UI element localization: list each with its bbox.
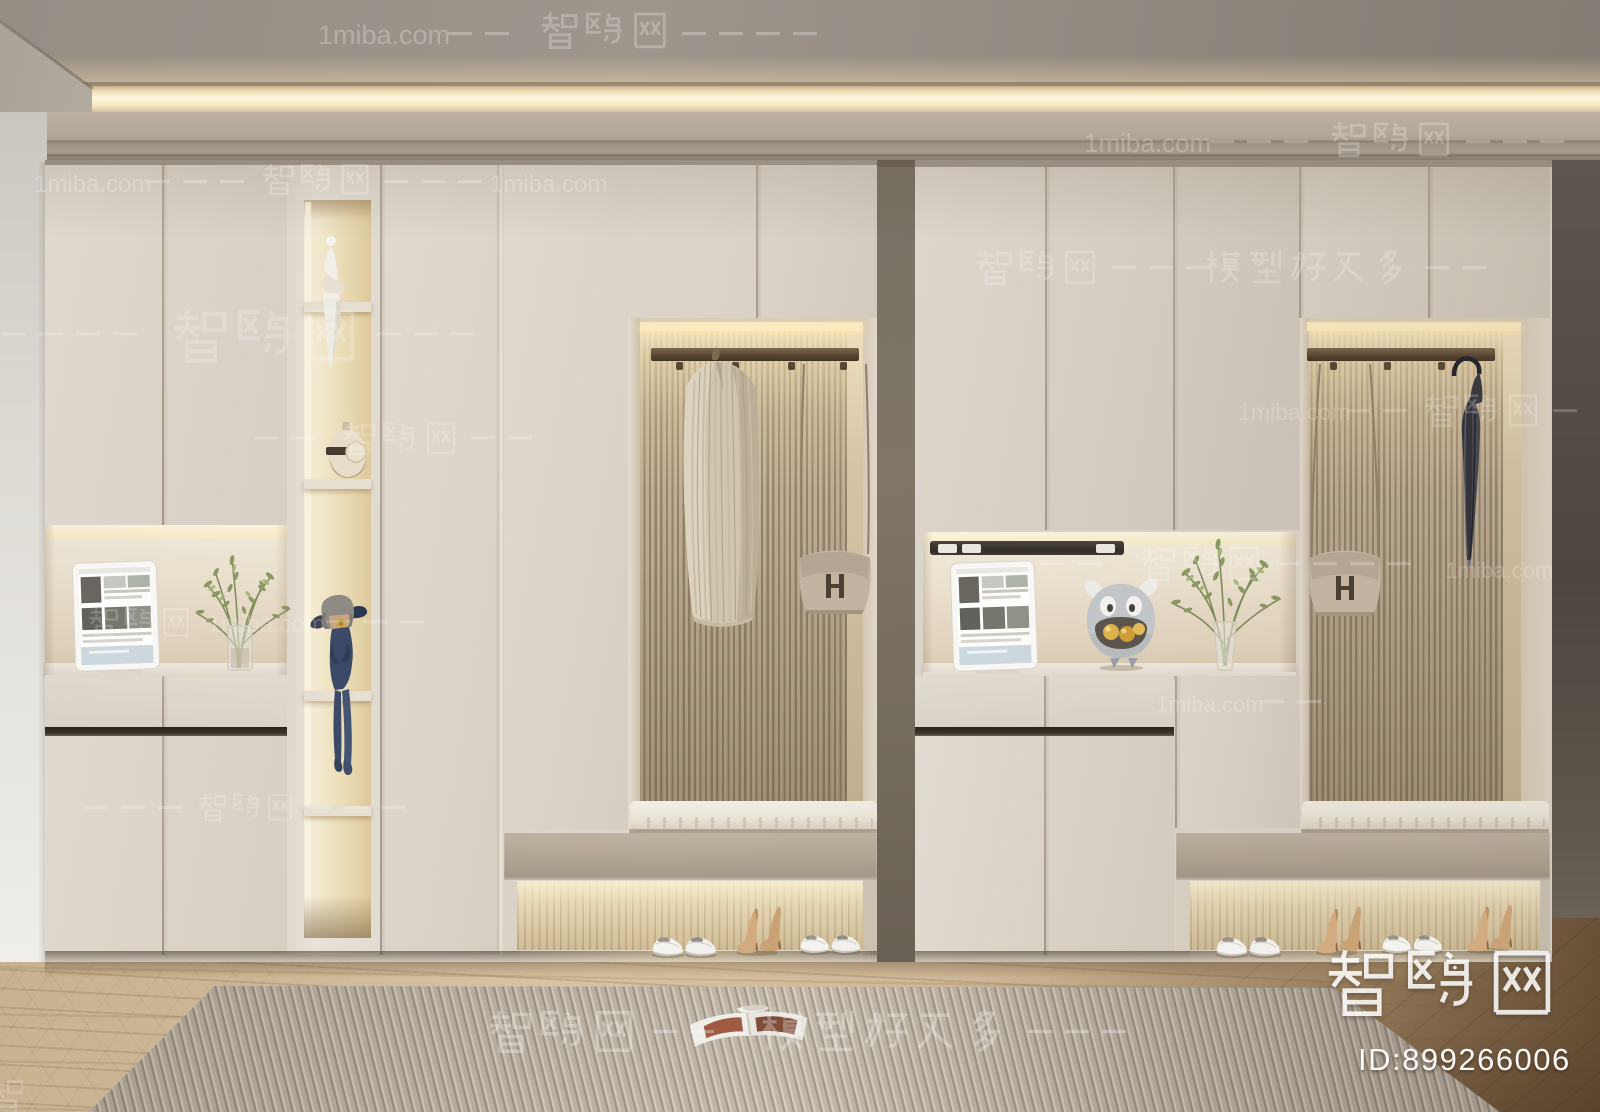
svg-text:1miba.com: 1miba.com: [1238, 399, 1350, 425]
svg-text:1miba.com: 1miba.com: [1156, 692, 1264, 717]
svg-text:1miba.com: 1miba.com: [1446, 558, 1554, 583]
svg-text:1miba.com: 1miba.com: [208, 611, 325, 638]
svg-text:1miba.com: 1miba.com: [318, 20, 450, 50]
svg-text:1miba.com: 1miba.com: [34, 171, 151, 198]
svg-text:1miba.com: 1miba.com: [490, 171, 607, 198]
svg-text:1miba.com: 1miba.com: [1084, 128, 1211, 158]
